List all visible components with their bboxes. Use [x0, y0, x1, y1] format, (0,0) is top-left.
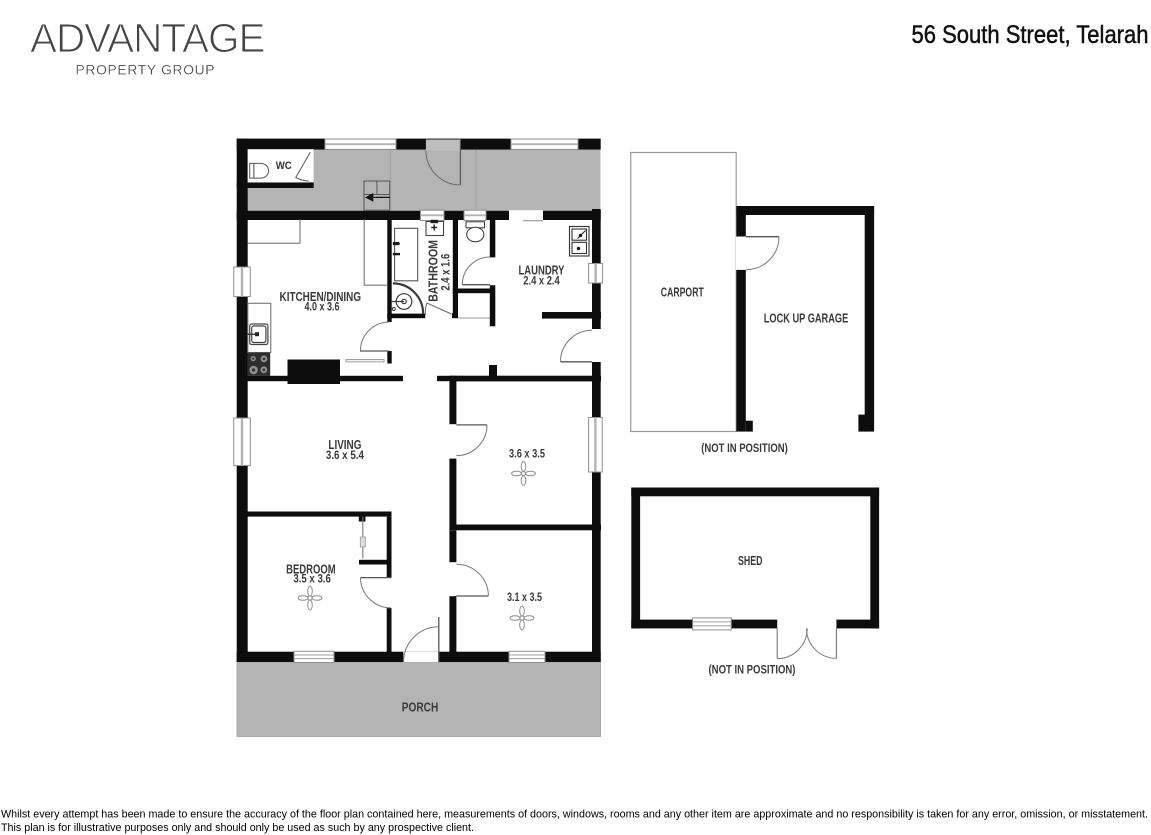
- svg-text:(NOT IN POSITION): (NOT IN POSITION): [709, 662, 796, 676]
- svg-text:2.4 x 2.4: 2.4 x 2.4: [523, 273, 560, 287]
- svg-text:4.0 x 3.6: 4.0 x 3.6: [305, 300, 340, 314]
- svg-text:CARPORT: CARPORT: [661, 285, 704, 299]
- svg-text:PORCH: PORCH: [402, 700, 439, 715]
- svg-text:56 South Street, Telarah: 56 South Street, Telarah: [912, 21, 1149, 49]
- svg-text:3.5 x 3.6: 3.5 x 3.6: [293, 572, 331, 586]
- svg-text:SHED: SHED: [738, 554, 763, 568]
- svg-text:WC: WC: [276, 160, 292, 172]
- svg-text:LOCK UP GARAGE: LOCK UP GARAGE: [764, 312, 849, 326]
- svg-text:ADVANTAGE: ADVANTAGE: [30, 15, 266, 61]
- svg-text:(NOT IN POSITION): (NOT IN POSITION): [701, 441, 788, 455]
- svg-text:PROPERTY GROUP: PROPERTY GROUP: [76, 63, 215, 78]
- svg-text:2.4 x 1.6: 2.4 x 1.6: [440, 254, 453, 291]
- svg-text:3.6 x 5.4: 3.6 x 5.4: [326, 448, 364, 462]
- svg-text:Whilst every attempt has been: Whilst every attempt has been made to en…: [1, 809, 1148, 821]
- svg-text:3.1 x 3.5: 3.1 x 3.5: [507, 590, 542, 604]
- svg-text:3.6 x 3.5: 3.6 x 3.5: [509, 447, 545, 461]
- svg-text:This plan is for illustrative: This plan is for illustrative purposes o…: [1, 822, 474, 834]
